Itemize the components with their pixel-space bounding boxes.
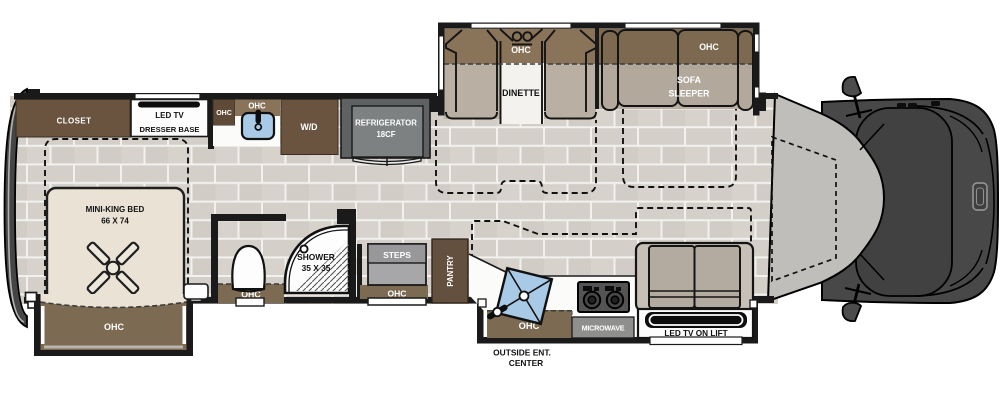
svg-text:DRESSER BASE: DRESSER BASE (140, 125, 200, 134)
svg-text:OHC: OHC (699, 42, 719, 52)
svg-text:PANTRY: PANTRY (446, 255, 455, 287)
svg-text:OHC: OHC (104, 322, 125, 332)
svg-text:CENTER: CENTER (509, 358, 543, 368)
svg-text:OUTSIDE ENT.: OUTSIDE ENT. (493, 348, 551, 358)
svg-text:STEPS: STEPS (383, 250, 411, 260)
svg-text:CLOSET: CLOSET (57, 117, 92, 126)
svg-text:OHC: OHC (388, 289, 407, 299)
svg-text:REFRIGERATOR: REFRIGERATOR (355, 119, 417, 128)
svg-text:66 X 74: 66 X 74 (101, 217, 129, 226)
svg-text:OHC: OHC (248, 102, 266, 111)
svg-text:SHOWER: SHOWER (297, 252, 335, 262)
svg-text:DINETTE: DINETTE (502, 88, 540, 98)
svg-text:OHC: OHC (216, 110, 232, 117)
svg-text:18CF: 18CF (376, 130, 395, 139)
svg-text:SOFA: SOFA (677, 75, 702, 85)
svg-text:MINI-KING BED: MINI-KING BED (86, 205, 145, 214)
svg-text:LED TV ON LIFT: LED TV ON LIFT (664, 329, 727, 338)
svg-text:LED TV: LED TV (155, 111, 184, 120)
svg-text:MICROWAVE: MICROWAVE (582, 324, 625, 333)
svg-text:W/D: W/D (300, 122, 317, 132)
svg-text:OHC: OHC (511, 45, 531, 55)
svg-text:35 X 35: 35 X 35 (302, 263, 331, 273)
svg-text:SLEEPER: SLEEPER (668, 89, 710, 99)
